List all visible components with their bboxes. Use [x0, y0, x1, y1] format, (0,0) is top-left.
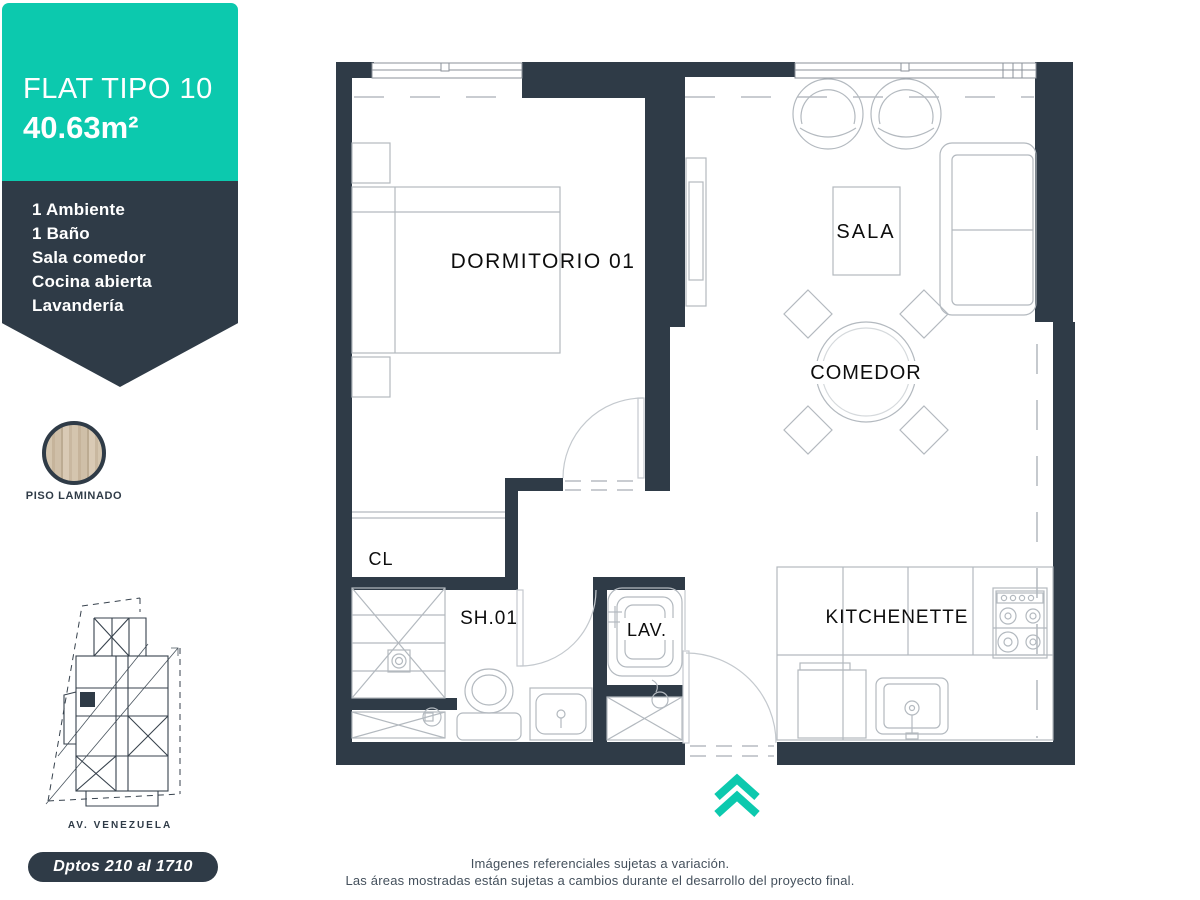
swatch-label: PISO LAMINADO — [8, 490, 140, 502]
label-comedor: COMEDOR — [810, 362, 921, 384]
label-sala: SALA — [836, 221, 895, 243]
label-kitchenette: KITCHENETTE — [826, 607, 969, 628]
lounge-chair — [871, 79, 941, 149]
shower — [352, 588, 445, 698]
kitchen-sink — [876, 678, 948, 739]
site-key-plan: AV. VENEZUELA — [28, 596, 218, 841]
nightstand — [352, 357, 390, 397]
label-closet: CL — [368, 549, 393, 569]
label-dormitorio: DORMITORIO 01 — [451, 250, 636, 273]
unit-location-marker — [80, 692, 95, 707]
duct-shaft — [607, 697, 682, 740]
duct-shaft — [352, 708, 445, 738]
entry-door — [683, 651, 776, 743]
bathroom-door — [517, 590, 596, 666]
entrance-chevron-icon — [717, 779, 757, 814]
furniture — [352, 79, 1053, 740]
label-laundry: LAV. — [627, 620, 667, 640]
sofa — [940, 143, 1036, 315]
building-footprint — [64, 618, 168, 806]
feature-item: Cocina abierta — [32, 270, 238, 294]
unit-feature-list: 1 Ambiente 1 Baño Sala comedor Cocina ab… — [2, 181, 238, 387]
floors-badge: Dptos 210 al 1710 — [28, 852, 218, 882]
lounge-chair — [793, 79, 863, 149]
stove — [993, 588, 1047, 658]
disclaimer: Imágenes referenciales sujetas a variaci… — [200, 855, 1000, 889]
toilet — [457, 669, 521, 740]
bedroom-door — [563, 398, 644, 478]
bath-vanity — [530, 688, 592, 740]
feature-item: 1 Ambiente — [32, 198, 238, 222]
feature-item: Lavandería — [32, 294, 238, 318]
nightstand — [352, 143, 390, 183]
unit-area: 40.63m² — [23, 110, 238, 146]
ceiling-projection-dashed-lines — [354, 97, 1037, 738]
feature-item: 1 Baño — [32, 222, 238, 246]
laminate-floor-swatch — [42, 421, 106, 485]
feature-item: Sala comedor — [32, 246, 238, 270]
fridge — [798, 663, 866, 738]
label-bath: SH.01 — [460, 608, 518, 629]
disclaimer-line-2: Las áreas mostradas están sujetas a camb… — [200, 872, 1000, 889]
disclaimer-line-1: Imágenes referenciales sujetas a variaci… — [200, 855, 1000, 872]
closet-shelf — [352, 512, 505, 518]
property-line-dashed — [48, 598, 180, 801]
unit-banner: FLAT TIPO 10 40.63m² 1 Ambiente 1 Baño S… — [2, 3, 238, 387]
survey-diagonals — [46, 644, 178, 804]
unit-banner-header: FLAT TIPO 10 40.63m² — [2, 3, 238, 181]
unit-title: FLAT TIPO 10 — [23, 73, 238, 105]
street-label: AV. VENEZUELA — [68, 820, 172, 831]
